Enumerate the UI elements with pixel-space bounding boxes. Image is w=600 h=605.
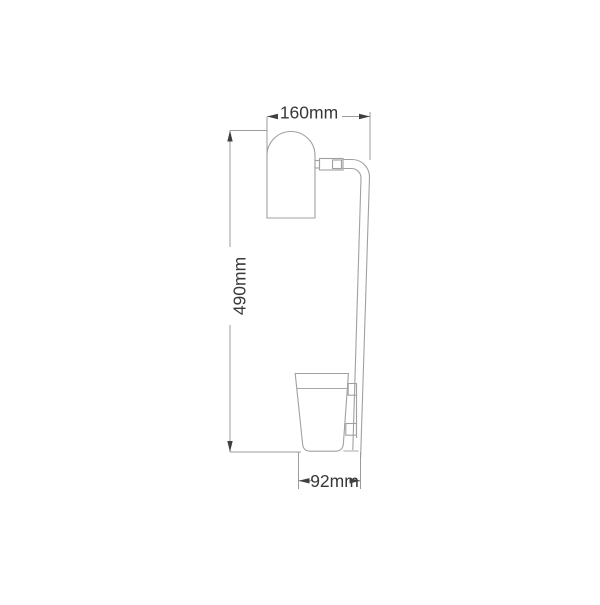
lamp-head xyxy=(267,132,315,219)
joint-neck xyxy=(315,161,320,169)
dimension-top-width: 160mm xyxy=(267,103,370,160)
dimension-bottom-width: 92mm xyxy=(299,452,361,491)
bracket-lower-clamp xyxy=(346,424,357,436)
lamp-fixture xyxy=(267,132,370,459)
swivel-joint xyxy=(315,159,343,171)
arrowhead-left xyxy=(267,114,278,119)
arrowhead-left xyxy=(299,478,310,483)
joint-detail xyxy=(333,160,342,169)
arrowhead-down xyxy=(227,441,232,452)
dimension-label-height: 490mm xyxy=(230,257,250,315)
arrowhead-right xyxy=(359,114,370,119)
arrowhead-up xyxy=(227,131,232,142)
dimension-label-top-width: 160mm xyxy=(280,103,338,123)
dimension-height: 490mm xyxy=(224,131,301,453)
lamp-dimension-diagram: 160mm 490mm 92mm xyxy=(0,0,600,600)
shade-cup xyxy=(295,374,348,452)
cup-outline xyxy=(295,374,348,452)
technical-drawing-page: 160mm 490mm 92mm xyxy=(0,0,600,600)
